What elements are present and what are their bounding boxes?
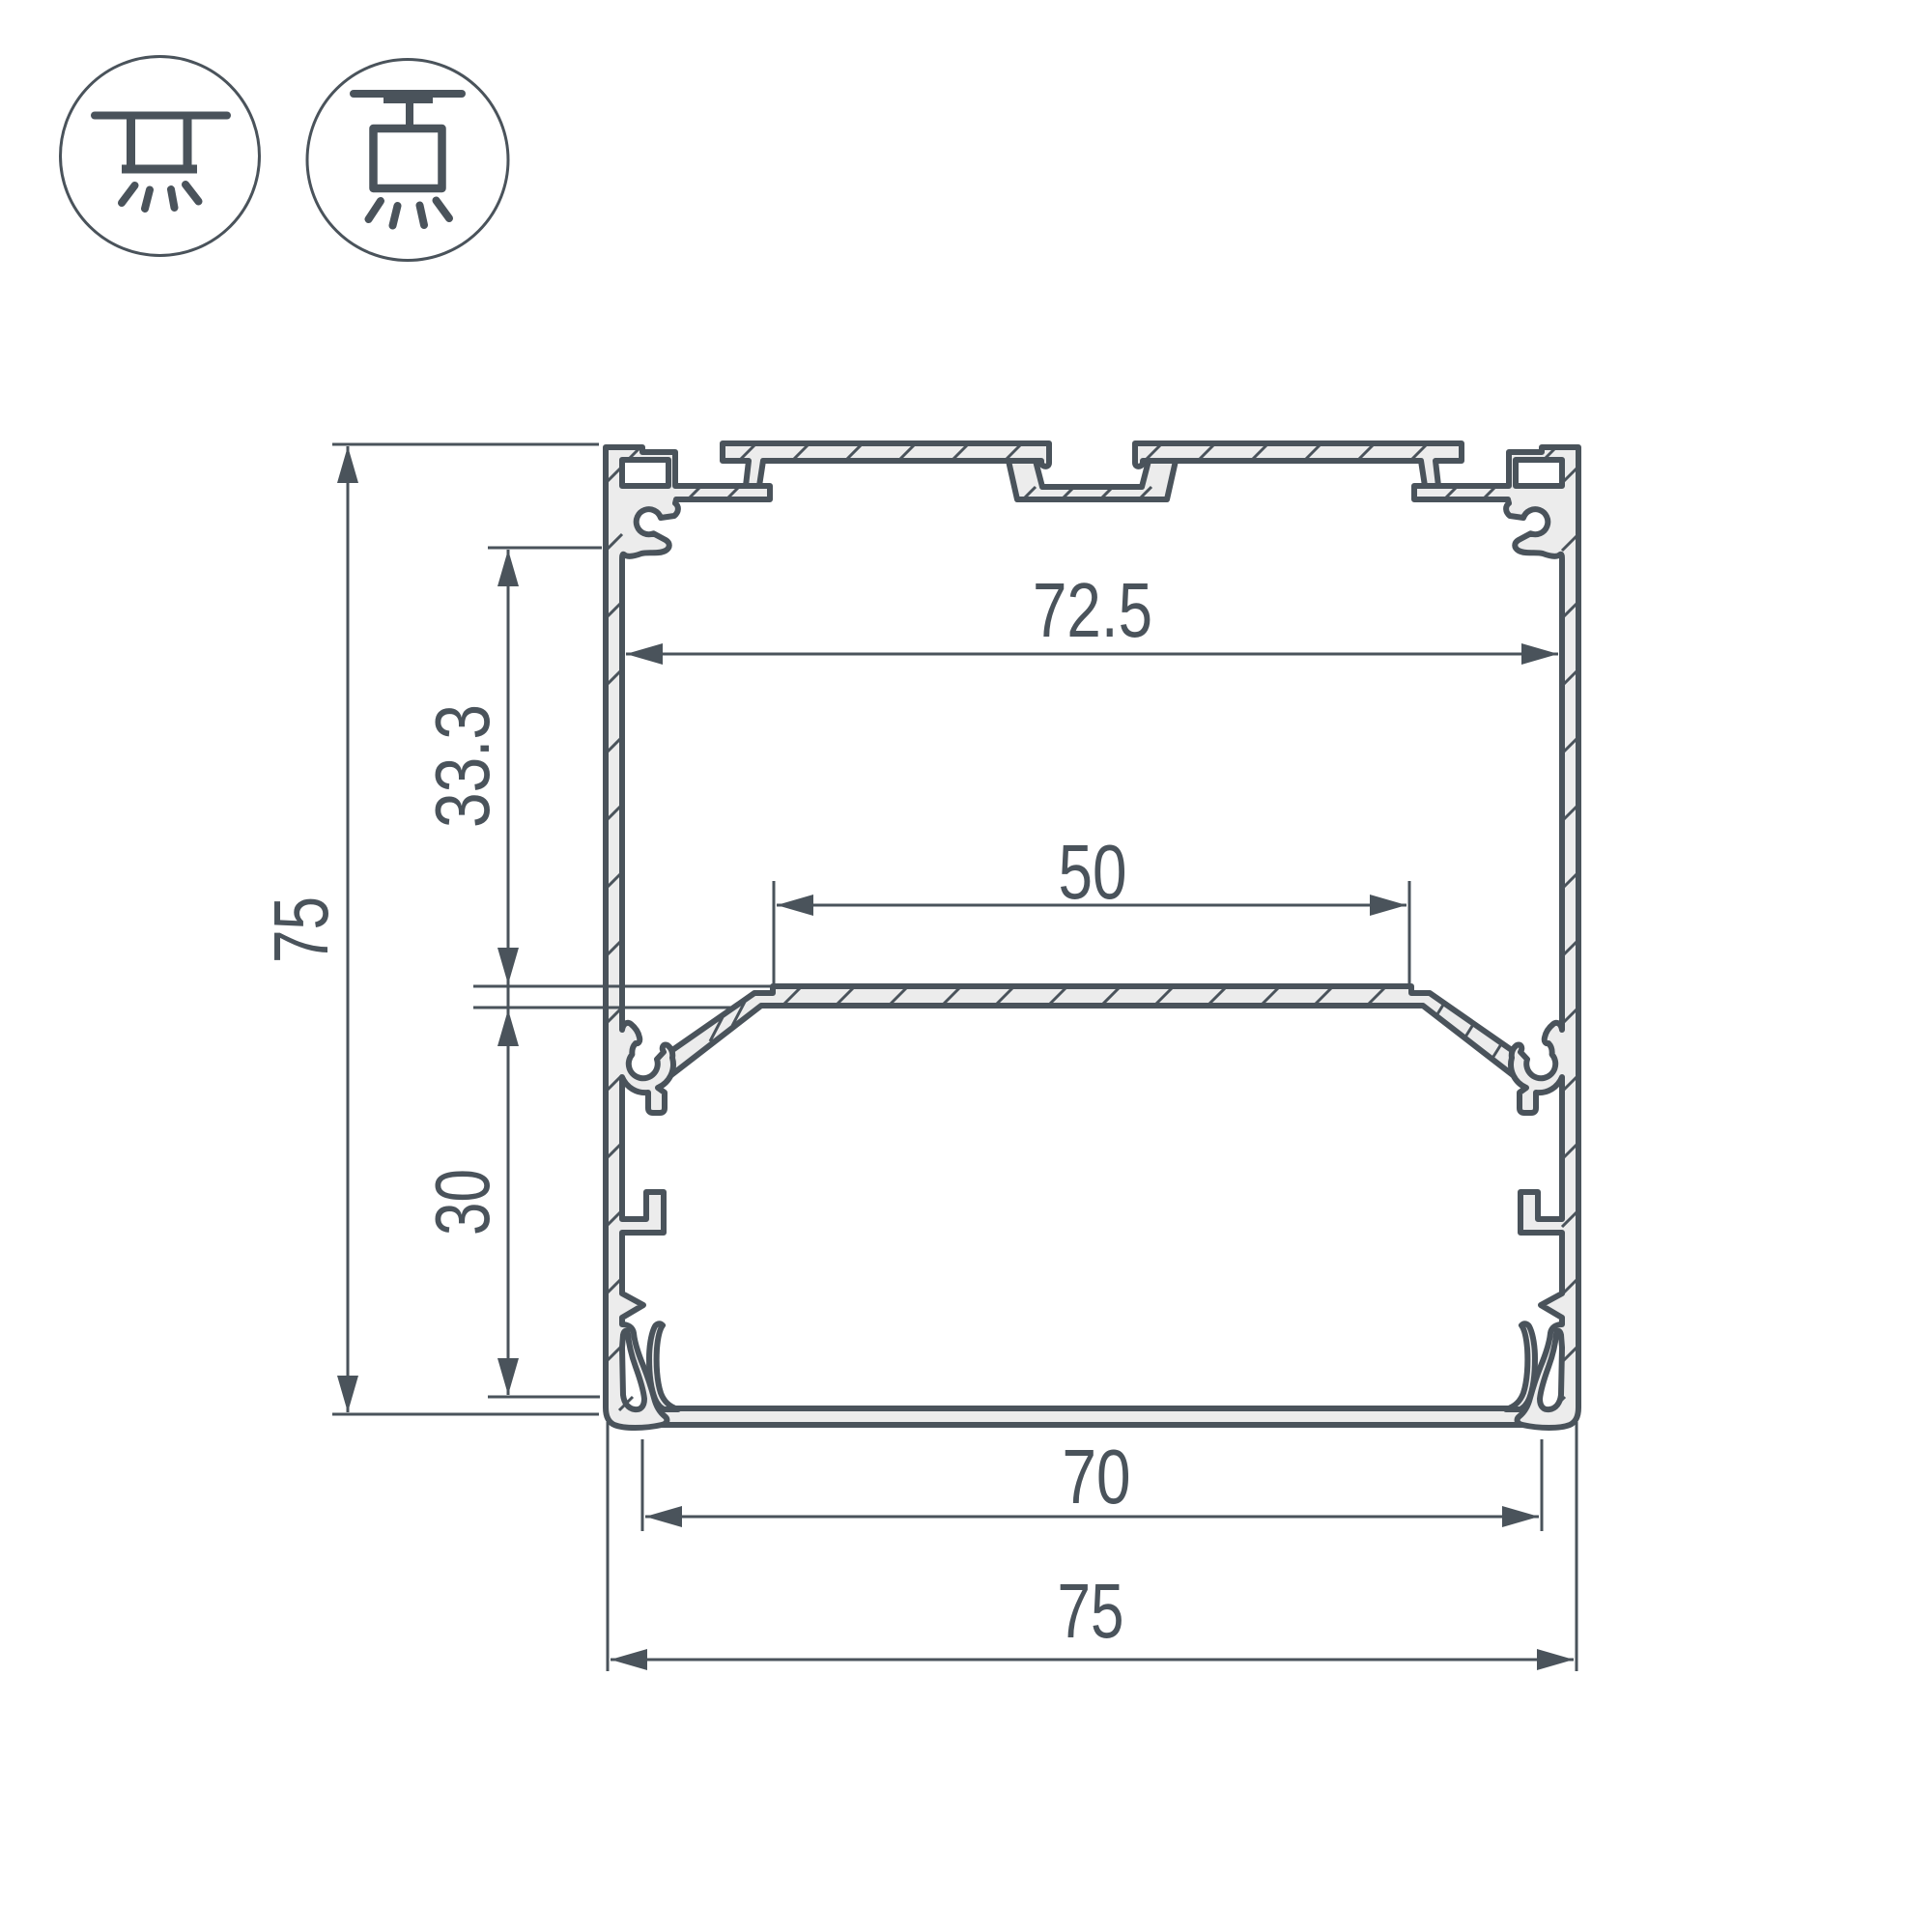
svg-text:70: 70 xyxy=(1063,1434,1131,1520)
svg-text:72.5: 72.5 xyxy=(1033,567,1152,653)
svg-text:50: 50 xyxy=(1059,829,1127,915)
svg-text:33.3: 33.3 xyxy=(419,704,505,828)
svg-text:75: 75 xyxy=(1058,1568,1124,1654)
svg-text:75: 75 xyxy=(258,896,344,963)
svg-text:30: 30 xyxy=(419,1169,505,1236)
